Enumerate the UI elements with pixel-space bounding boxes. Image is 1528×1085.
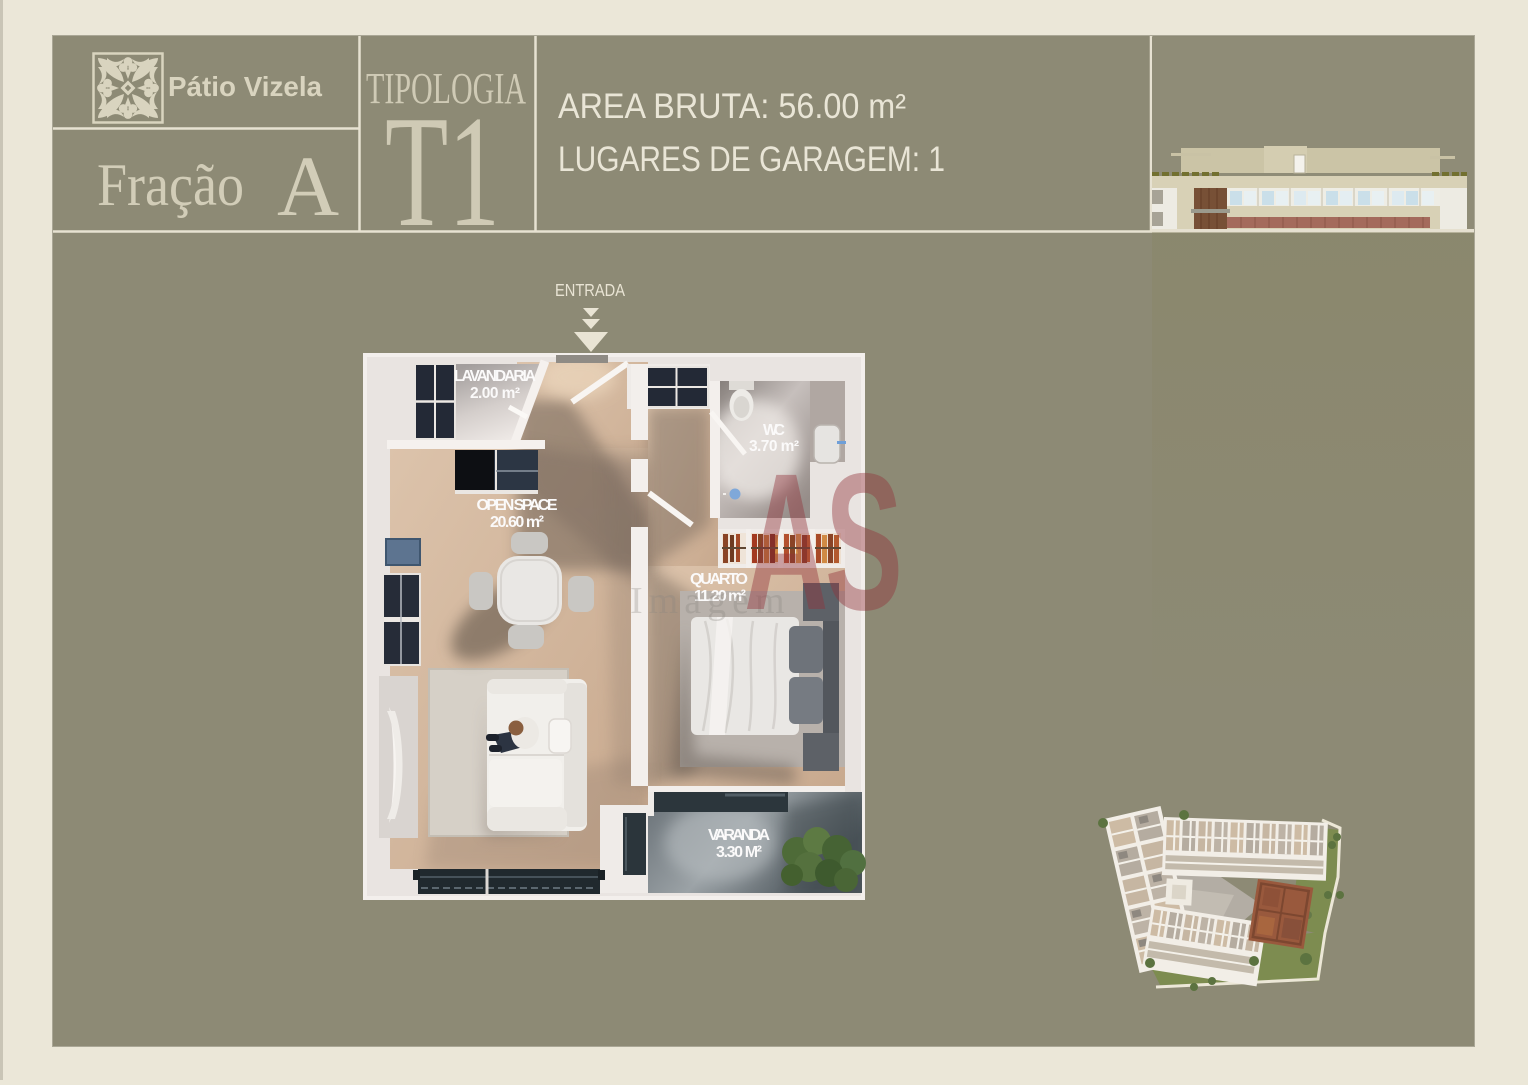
svg-text:LUGARES DE GARAGEM: 1: LUGARES DE GARAGEM: 1 xyxy=(558,140,945,179)
svg-text:A: A xyxy=(277,138,339,234)
svg-text:20.60 m²: 20.60 m² xyxy=(490,514,544,531)
svg-text:Pátio Vizela: Pátio Vizela xyxy=(168,71,322,102)
svg-text:3.30 M²: 3.30 M² xyxy=(716,844,762,861)
svg-text:AS: AS xyxy=(744,433,899,651)
svg-text:2.00 m²: 2.00 m² xyxy=(470,385,520,402)
svg-text:LAVANDARIA: LAVANDARIA xyxy=(454,368,536,385)
svg-text:AREA BRUTA: 56.00 m²: AREA BRUTA: 56.00 m² xyxy=(558,87,906,126)
svg-text:T1: T1 xyxy=(385,82,500,260)
svg-text:VARANDA: VARANDA xyxy=(708,827,770,844)
svg-text:ENTRADA: ENTRADA xyxy=(555,280,625,300)
svg-text:OPEN SPACE: OPEN SPACE xyxy=(477,497,558,514)
svg-text:Fração: Fração xyxy=(97,152,244,218)
